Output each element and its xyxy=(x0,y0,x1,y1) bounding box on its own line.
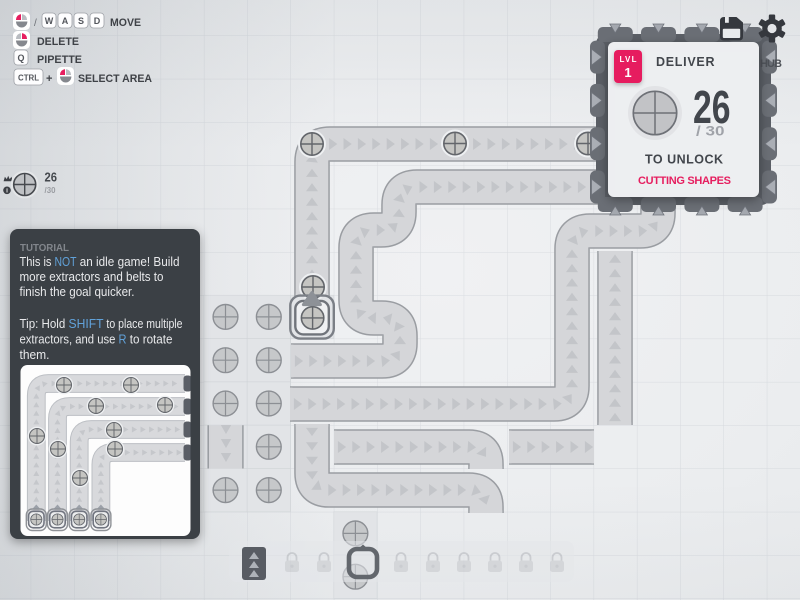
svg-text:/ 30: / 30 xyxy=(696,123,725,139)
svg-text:LVL: LVL xyxy=(620,55,637,64)
svg-text:S: S xyxy=(78,16,84,26)
svg-text:CUTTING SHAPES: CUTTING SHAPES xyxy=(638,175,731,187)
svg-text:Tip: Hold: Tip: Hold xyxy=(20,316,69,331)
svg-text:TO UNLOCK: TO UNLOCK xyxy=(645,153,723,167)
svg-text:more extractors and belts to: more extractors and belts to xyxy=(20,269,164,284)
svg-text:NOT: NOT xyxy=(55,254,77,269)
svg-text:D: D xyxy=(94,16,101,26)
svg-text:extractors, and use: extractors, and use xyxy=(20,332,119,347)
svg-text:to place multiple: to place multiple xyxy=(104,316,183,331)
svg-text:SHIFT: SHIFT xyxy=(69,316,104,331)
svg-text:DELIVER: DELIVER xyxy=(656,55,716,69)
svg-text:/: / xyxy=(34,18,37,29)
svg-text:an idle game! Build: an idle game! Build xyxy=(77,254,180,269)
svg-text:W: W xyxy=(45,16,54,26)
svg-text:R: R xyxy=(119,332,127,347)
svg-text:CTRL: CTRL xyxy=(18,74,39,83)
svg-text:/30: /30 xyxy=(45,185,56,195)
svg-text:A: A xyxy=(62,16,69,26)
svg-text:26: 26 xyxy=(45,170,58,185)
svg-text:i: i xyxy=(6,188,8,195)
svg-text:This is: This is xyxy=(20,254,55,269)
svg-text:MOVE: MOVE xyxy=(110,17,141,29)
svg-text:Q: Q xyxy=(17,53,24,63)
svg-text:1: 1 xyxy=(624,65,631,80)
svg-text:finish the goal quicker.: finish the goal quicker. xyxy=(20,284,135,299)
svg-text:HUB: HUB xyxy=(760,58,782,70)
svg-text:them.: them. xyxy=(20,347,50,362)
svg-text:to rotate: to rotate xyxy=(127,332,173,347)
svg-text:+: + xyxy=(46,73,52,85)
svg-text:SELECT AREA: SELECT AREA xyxy=(78,73,152,85)
svg-text:DELETE: DELETE xyxy=(37,36,79,48)
svg-text:TUTORIAL: TUTORIAL xyxy=(20,243,69,254)
svg-text:PIPETTE: PIPETTE xyxy=(37,54,82,66)
